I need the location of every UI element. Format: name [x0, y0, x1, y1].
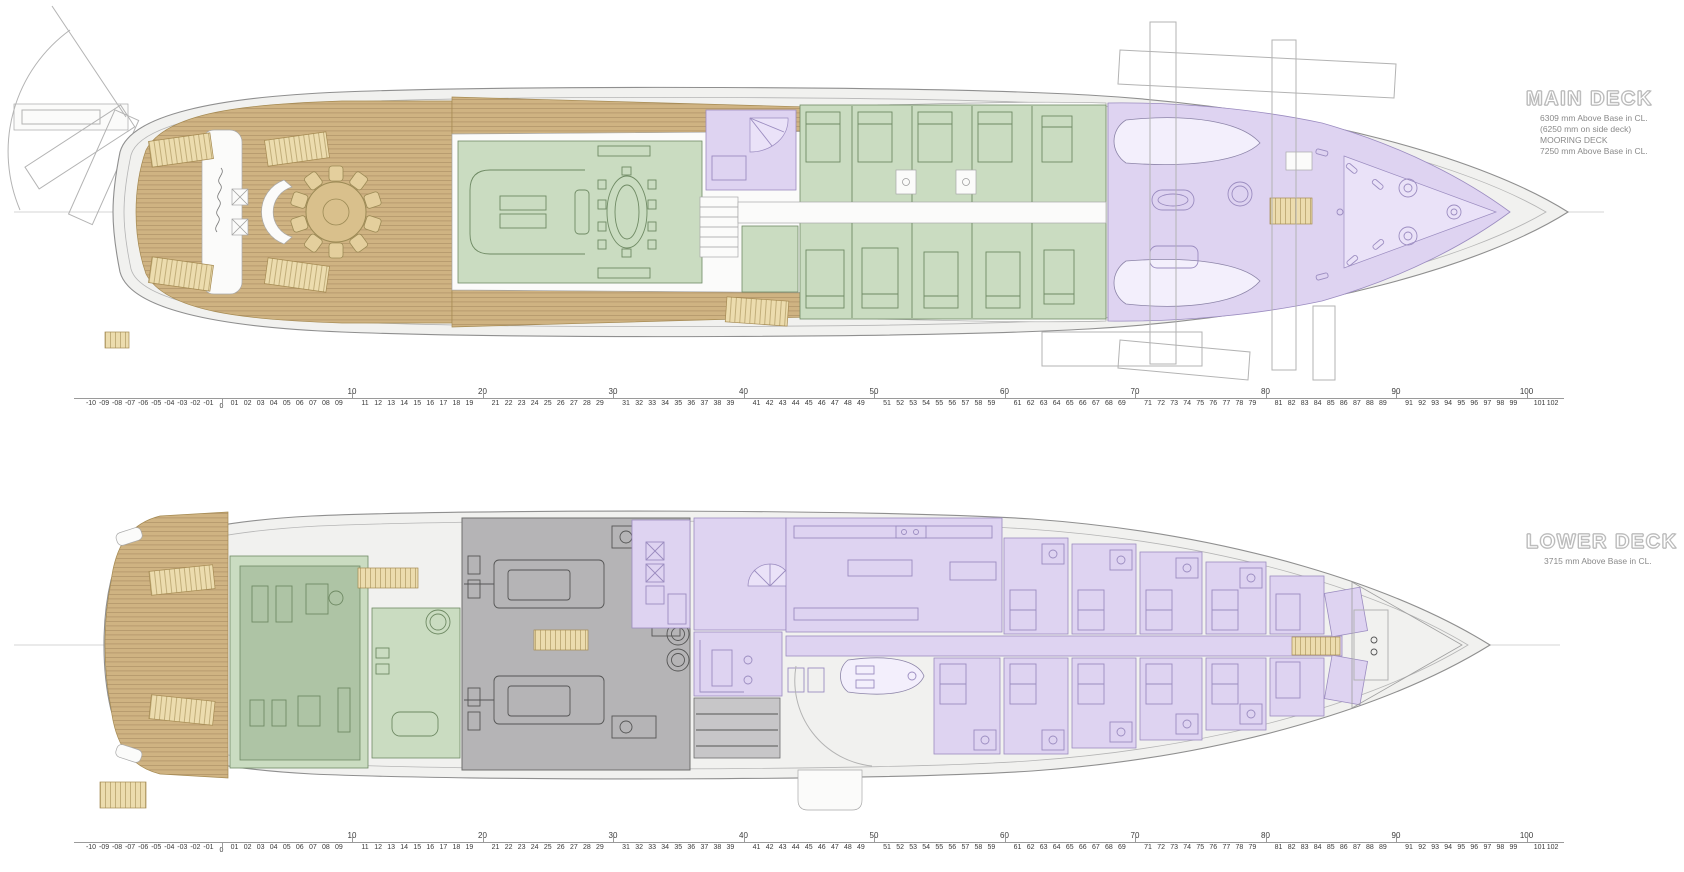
- frame-tick: [483, 392, 484, 399]
- frame-label: 65: [1066, 400, 1074, 407]
- frame-label: 03: [257, 400, 265, 407]
- forward-stairs: [1292, 637, 1340, 655]
- frame-label: 98: [1496, 844, 1504, 851]
- frame-label: 81: [1275, 844, 1283, 851]
- frame-label: 54: [922, 400, 930, 407]
- frame-tick: [483, 836, 484, 843]
- frame-tick: [744, 392, 745, 399]
- frame-label: 68: [1105, 400, 1113, 407]
- frame-label: 06: [296, 844, 304, 851]
- frame-tick: [874, 392, 875, 399]
- frame-label: 82: [1288, 400, 1296, 407]
- frame-label: -03: [177, 400, 187, 407]
- frame-label: 98: [1496, 400, 1504, 407]
- frame-label: 46: [818, 844, 826, 851]
- frame-label: 67: [1092, 400, 1100, 407]
- frame-label: 76: [1209, 400, 1217, 407]
- crew-corridor: [786, 636, 1342, 656]
- frame-label: 62: [1027, 844, 1035, 851]
- frame-label: 102: [1547, 400, 1559, 407]
- frame-tick: [222, 398, 223, 404]
- frame-tick: [1005, 836, 1006, 843]
- frame-label: 59: [988, 400, 996, 407]
- frame-label: 21: [492, 844, 500, 851]
- frame-label: 87: [1353, 844, 1361, 851]
- frame-label: -04: [164, 400, 174, 407]
- frame-label: 47: [831, 844, 839, 851]
- frame-label: 48: [844, 400, 852, 407]
- frame-label: 61: [1014, 844, 1022, 851]
- frame-label: 83: [1301, 400, 1309, 407]
- frame-label: 35: [674, 400, 682, 407]
- frame-label: 25: [544, 844, 552, 851]
- engine-room-stairs: [534, 630, 588, 650]
- frame-label: 73: [1170, 400, 1178, 407]
- frame-label: 23: [518, 844, 526, 851]
- frame-label: 94: [1444, 844, 1452, 851]
- frame-label: -05: [151, 844, 161, 851]
- frame-label: 28: [583, 400, 591, 407]
- frame-label: 38: [713, 844, 721, 851]
- frame-label: 72: [1157, 844, 1165, 851]
- frame-label: 51: [883, 844, 891, 851]
- frame-label: 86: [1340, 400, 1348, 407]
- frame-label: 11: [361, 844, 368, 851]
- frame-label: 91: [1405, 844, 1413, 851]
- frame-label: 59: [988, 844, 996, 851]
- frame-label: 77: [1222, 844, 1230, 851]
- frame-label: -04: [164, 844, 174, 851]
- deck-subtitle-line: 3715 mm Above Base in CL.: [1544, 556, 1678, 567]
- frame-tick: [1396, 836, 1397, 843]
- frame-label: 54: [922, 844, 930, 851]
- frame-label: 05: [283, 400, 291, 407]
- deck-subtitle-line: 7250 mm Above Base in CL.: [1540, 146, 1653, 157]
- frame-tick: [1266, 836, 1267, 843]
- frame-label: 22: [505, 844, 513, 851]
- frame-label: -01: [203, 844, 213, 851]
- frame-label: 95: [1457, 844, 1465, 851]
- frame-label: 56: [948, 844, 956, 851]
- lower-deck-subtitles: 3715 mm Above Base in CL.: [1544, 556, 1678, 567]
- frame-ruler-baseline: [74, 842, 1564, 843]
- frame-label: 11: [361, 400, 368, 407]
- frame-label: 52: [896, 400, 904, 407]
- frame-label: 07: [309, 400, 317, 407]
- frame-label: 04: [270, 844, 278, 851]
- frame-label: 101: [1534, 400, 1546, 407]
- frame-label: 81: [1275, 400, 1283, 407]
- frame-label: 14: [400, 400, 408, 407]
- frame-label: 42: [766, 844, 774, 851]
- frame-label: 26: [557, 844, 565, 851]
- frame-tick: [1527, 836, 1528, 843]
- frame-label: 01: [231, 400, 239, 407]
- frame-label: -05: [151, 400, 161, 407]
- frame-label: 47: [831, 400, 839, 407]
- frame-label: 44: [792, 400, 800, 407]
- frame-label: 43: [779, 844, 787, 851]
- frame-label: 04: [270, 400, 278, 407]
- frame-label: 74: [1183, 400, 1191, 407]
- deck-subtitle-line: (6250 mm on side deck): [1540, 124, 1653, 135]
- frame-label: 62: [1027, 400, 1035, 407]
- frame-label: 36: [687, 844, 695, 851]
- frame-label: 88: [1366, 400, 1374, 407]
- frame-label: 18: [452, 844, 460, 851]
- frame-label: 63: [1040, 400, 1048, 407]
- frame-label: 25: [544, 400, 552, 407]
- frame-label: 01: [231, 844, 239, 851]
- frame-label: 99: [1510, 400, 1518, 407]
- frame-tick: [1005, 392, 1006, 399]
- main-deck-subtitles: 6309 mm Above Base in CL.(6250 mm on sid…: [1540, 113, 1653, 157]
- frame-label: 55: [935, 400, 943, 407]
- frame-label: 24: [531, 400, 539, 407]
- frame-label: 96: [1470, 844, 1478, 851]
- frame-label: 26: [557, 400, 565, 407]
- frame-label: 22: [505, 400, 513, 407]
- frame-label: 15: [413, 844, 421, 851]
- lower-deck-plan: [0, 455, 1684, 872]
- frame-label: 88: [1366, 844, 1374, 851]
- frame-label: 43: [779, 400, 787, 407]
- frame-label: 52: [896, 844, 904, 851]
- frame-label: 36: [687, 400, 695, 407]
- frame-label: 65: [1066, 844, 1074, 851]
- frame-label: 24: [531, 844, 539, 851]
- frame-label: 74: [1183, 844, 1191, 851]
- frame-label: 71: [1144, 844, 1152, 851]
- frame-ruler-baseline: [74, 398, 1564, 399]
- frame-label: 03: [257, 844, 265, 851]
- frame-tick: [1396, 392, 1397, 399]
- main-deck-title-block: MAIN DECK 6309 mm Above Base in CL.(6250…: [1526, 88, 1653, 157]
- frame-label: -02: [190, 844, 200, 851]
- frame-label: 02: [244, 844, 252, 851]
- spa-room: [372, 608, 460, 758]
- frame-label: 38: [713, 400, 721, 407]
- frame-label: 63: [1040, 844, 1048, 851]
- deck-subtitle-line: MOORING DECK: [1540, 135, 1653, 146]
- frame-label: 69: [1118, 400, 1126, 407]
- frame-label: 75: [1196, 400, 1204, 407]
- frame-label: 82: [1288, 844, 1296, 851]
- frame-label: -03: [177, 844, 187, 851]
- frame-label: 72: [1157, 400, 1165, 407]
- frame-label: 27: [570, 844, 578, 851]
- frame-label: 89: [1379, 400, 1387, 407]
- frame-label: -07: [125, 400, 135, 407]
- frame-label: 97: [1483, 844, 1491, 851]
- frame-tick: [352, 392, 353, 399]
- frame-label: 68: [1105, 844, 1113, 851]
- frame-label: 0: [220, 403, 224, 410]
- frame-label: 19: [466, 400, 474, 407]
- lower-deck-title: LOWER DECK: [1526, 531, 1678, 554]
- frame-label: 34: [661, 844, 669, 851]
- frame-label: 09: [335, 400, 343, 407]
- frame-label: 92: [1418, 844, 1426, 851]
- frame-label: 93: [1431, 844, 1439, 851]
- frame-label: 66: [1079, 844, 1087, 851]
- frame-tick: [613, 836, 614, 843]
- frame-label: 84: [1314, 844, 1322, 851]
- main-salon: [458, 141, 702, 283]
- frame-label: 79: [1249, 844, 1257, 851]
- frame-tick: [222, 842, 223, 848]
- frame-label: 09: [335, 844, 343, 851]
- frame-label: 42: [766, 400, 774, 407]
- frame-label: 45: [805, 844, 813, 851]
- frame-label: 27: [570, 400, 578, 407]
- frame-label: 39: [727, 844, 735, 851]
- frame-label: 12: [374, 844, 382, 851]
- frame-label: 61: [1014, 400, 1022, 407]
- frame-label: 33: [648, 844, 656, 851]
- frame-label: 37: [700, 844, 708, 851]
- frame-label: 08: [322, 400, 330, 407]
- frame-label: 85: [1327, 400, 1335, 407]
- frame-label: -07: [125, 844, 135, 851]
- frame-label: 08: [322, 844, 330, 851]
- frame-label: 55: [935, 844, 943, 851]
- frame-label: 19: [466, 844, 474, 851]
- frame-label: 12: [374, 400, 382, 407]
- swim-ladder: [100, 782, 146, 808]
- frame-label: 44: [792, 844, 800, 851]
- frame-label: -01: [203, 400, 213, 407]
- frame-label: 78: [1235, 844, 1243, 851]
- frame-label: 05: [283, 844, 291, 851]
- frame-label: -06: [138, 844, 148, 851]
- frame-label: 94: [1444, 400, 1452, 407]
- frame-label: 64: [1053, 844, 1061, 851]
- frame-label: 77: [1222, 400, 1230, 407]
- aft-deck: [105, 101, 452, 348]
- frame-label: -08: [112, 400, 122, 407]
- frame-label: 18: [452, 400, 460, 407]
- stern-steps: [105, 332, 129, 348]
- frame-label: 17: [439, 400, 447, 407]
- side-platform: [798, 770, 862, 810]
- frame-label: 97: [1483, 400, 1491, 407]
- deck-subtitle-line: 6309 mm Above Base in CL.: [1540, 113, 1653, 124]
- frame-label: -09: [99, 844, 109, 851]
- frame-tick: [352, 836, 353, 843]
- frame-label: 33: [648, 400, 656, 407]
- frame-label: 102: [1547, 844, 1559, 851]
- frame-label: 49: [857, 844, 865, 851]
- frame-label: 07: [309, 844, 317, 851]
- frame-label: 91: [1405, 400, 1413, 407]
- frame-label: 57: [961, 400, 969, 407]
- frame-label: 58: [974, 400, 982, 407]
- frame-label: 32: [635, 844, 643, 851]
- galley: [786, 518, 1002, 632]
- frame-label: 39: [727, 400, 735, 407]
- frame-label: 89: [1379, 844, 1387, 851]
- frame-label: 0: [220, 847, 224, 854]
- beach-club: [100, 512, 228, 808]
- frame-label: 93: [1431, 400, 1439, 407]
- frame-tick: [744, 836, 745, 843]
- main-deck-title: MAIN DECK: [1526, 88, 1653, 111]
- frame-label: 35: [674, 844, 682, 851]
- frame-label: 66: [1079, 400, 1087, 407]
- frame-label: 67: [1092, 844, 1100, 851]
- frame-label: 14: [400, 844, 408, 851]
- frame-label: 57: [961, 844, 969, 851]
- side-deck-stairs: [725, 297, 789, 326]
- frame-label: 76: [1209, 844, 1217, 851]
- frame-label: 58: [974, 844, 982, 851]
- frame-label: 92: [1418, 400, 1426, 407]
- stairs-up: [358, 568, 418, 588]
- frame-label: 78: [1235, 400, 1243, 407]
- frame-label: 37: [700, 400, 708, 407]
- frame-label: 16: [426, 844, 434, 851]
- frame-label: 28: [583, 844, 591, 851]
- laundry: [632, 520, 690, 628]
- frame-label: 31: [622, 400, 630, 407]
- frame-label: -10: [86, 844, 96, 851]
- frame-label: 45: [805, 400, 813, 407]
- frame-label: 75: [1196, 844, 1204, 851]
- frame-label: 46: [818, 400, 826, 407]
- frame-tick: [874, 836, 875, 843]
- frame-label: 85: [1327, 844, 1335, 851]
- frame-label: 49: [857, 400, 865, 407]
- store-room: [694, 698, 780, 758]
- frame-label: 06: [296, 400, 304, 407]
- frame-label: 13: [387, 400, 395, 407]
- frame-label: 41: [753, 844, 761, 851]
- frame-label: 83: [1301, 844, 1309, 851]
- frame-tick: [1135, 392, 1136, 399]
- frame-label: 23: [518, 400, 526, 407]
- frame-label: 79: [1249, 400, 1257, 407]
- frame-label: 56: [948, 400, 956, 407]
- frame-label: 51: [883, 400, 891, 407]
- frame-label: 31: [622, 844, 630, 851]
- frame-label: 16: [426, 400, 434, 407]
- frame-label: 32: [635, 400, 643, 407]
- frame-label: 48: [844, 844, 852, 851]
- lower-deck-frame-ruler: -10-09-08-07-06-05-04-03-02-010102030405…: [0, 826, 1684, 860]
- frame-tick: [1135, 836, 1136, 843]
- frame-label: 29: [596, 844, 604, 851]
- frame-label: 69: [1118, 844, 1126, 851]
- frame-tick: [1527, 392, 1528, 399]
- blueprint-canvas: MAIN DECK 6309 mm Above Base in CL.(6250…: [0, 0, 1684, 872]
- frame-label: -10: [86, 400, 96, 407]
- frame-label: 86: [1340, 844, 1348, 851]
- frame-label: 21: [492, 400, 500, 407]
- frame-label: 87: [1353, 400, 1361, 407]
- foredeck-stairs: [1270, 198, 1312, 224]
- main-deck-frame-ruler: -10-09-08-07-06-05-04-03-02-010102030405…: [0, 382, 1684, 416]
- corridor: [738, 202, 1106, 223]
- frame-label: -08: [112, 844, 122, 851]
- frame-label: 41: [753, 400, 761, 407]
- frame-label: 84: [1314, 400, 1322, 407]
- frame-label: 53: [909, 400, 917, 407]
- frame-label: 02: [244, 400, 252, 407]
- frame-label: 34: [661, 400, 669, 407]
- frame-tick: [1266, 392, 1267, 399]
- frame-label: 96: [1470, 400, 1478, 407]
- frame-label: 17: [439, 844, 447, 851]
- frame-label: -02: [190, 400, 200, 407]
- frame-label: 29: [596, 400, 604, 407]
- frame-label: -06: [138, 400, 148, 407]
- frame-label: 15: [413, 400, 421, 407]
- frame-label: 101: [1534, 844, 1546, 851]
- frame-label: -09: [99, 400, 109, 407]
- frame-tick: [613, 392, 614, 399]
- frame-label: 71: [1144, 400, 1152, 407]
- lower-deck-title-block: LOWER DECK 3715 mm Above Base in CL.: [1526, 531, 1678, 567]
- frame-label: 64: [1053, 400, 1061, 407]
- frame-label: 53: [909, 844, 917, 851]
- frame-label: 73: [1170, 844, 1178, 851]
- frame-label: 13: [387, 844, 395, 851]
- frame-label: 99: [1510, 844, 1518, 851]
- crew-lobby: [694, 518, 792, 630]
- frame-label: 95: [1457, 400, 1465, 407]
